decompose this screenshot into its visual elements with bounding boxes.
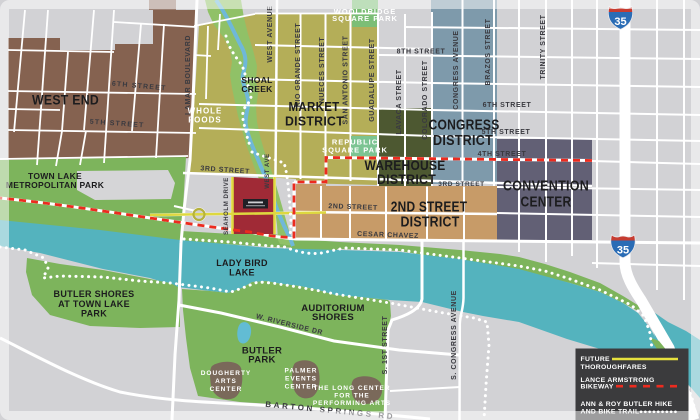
svg-text:SQUARE PARK: SQUARE PARK (332, 14, 398, 23)
svg-text:NUECES STREET: NUECES STREET (319, 37, 326, 104)
svg-text:AT TOWN LAKE: AT TOWN LAKE (58, 299, 130, 309)
svg-text:LADY BIRD: LADY BIRD (216, 258, 268, 268)
svg-text:S. 1ST STREET: S. 1ST STREET (382, 316, 389, 375)
svg-text:EVENTS: EVENTS (285, 376, 317, 383)
svg-text:THOROUGHFARES: THOROUGHFARES (581, 364, 647, 371)
svg-text:CONGRESS AVENUE: CONGRESS AVENUE (453, 30, 460, 109)
svg-text:4TH STREET: 4TH STREET (478, 151, 527, 158)
svg-text:SAN ANTONIO STREET: SAN ANTONIO STREET (343, 35, 350, 124)
svg-text:CREEK: CREEK (241, 84, 273, 94)
svg-text:DISTRICT: DISTRICT (377, 172, 436, 188)
svg-text:FUTURE: FUTURE (581, 356, 611, 363)
svg-text:BUTLER SHORES: BUTLER SHORES (54, 289, 135, 299)
svg-text:RIO GRANDE STREET: RIO GRANDE STREET (295, 23, 302, 108)
svg-text:SQUARE PARK: SQUARE PARK (322, 146, 388, 155)
svg-text:CONGRESS: CONGRESS (429, 116, 500, 133)
svg-text:FOODS: FOODS (188, 116, 221, 125)
svg-text:8TH STREET: 8TH STREET (397, 49, 446, 56)
svg-text:MARKET: MARKET (289, 100, 340, 114)
svg-text:WHOLE: WHOLE (188, 107, 223, 116)
svg-text:S. CONGRESS AVENUE: S. CONGRESS AVENUE (451, 290, 458, 380)
svg-text:SEAHOLM DRIVE: SEAHOLM DRIVE (224, 177, 230, 235)
svg-text:WEST AVENUE: WEST AVENUE (267, 5, 274, 62)
svg-text:METROPOLITAN PARK: METROPOLITAN PARK (6, 180, 105, 190)
svg-text:SHORES: SHORES (312, 312, 354, 323)
svg-text:ANN & ROY BUTLER HIKE: ANN & ROY BUTLER HIKE (581, 401, 673, 408)
svg-text:LAMAR BOULEVARD: LAMAR BOULEVARD (185, 35, 192, 115)
svg-text:DISTRICT: DISTRICT (433, 132, 493, 149)
svg-text:CENTER: CENTER (521, 195, 572, 211)
svg-text:WEST END: WEST END (32, 93, 99, 108)
svg-text:CONVENTION: CONVENTION (503, 179, 589, 195)
svg-text:WEST AVE: WEST AVE (265, 153, 271, 188)
svg-text:DISTRICT: DISTRICT (401, 213, 460, 230)
svg-text:PARK: PARK (81, 309, 107, 319)
svg-text:PERFORMING ARTS: PERFORMING ARTS (313, 400, 391, 407)
svg-text:ARTS: ARTS (215, 378, 237, 385)
svg-text:BRAZOS STREET: BRAZOS STREET (485, 18, 492, 85)
svg-text:LAVACA STREET: LAVACA STREET (396, 69, 403, 134)
svg-text:3RD STREET: 3RD STREET (438, 181, 484, 188)
svg-text:PARK: PARK (248, 355, 275, 366)
svg-text:TRINITY STREET: TRINITY STREET (540, 14, 547, 79)
svg-text:GUADALUPE STREET: GUADALUPE STREET (369, 38, 376, 122)
svg-text:BIKEWAY: BIKEWAY (581, 384, 614, 391)
svg-text:FOR THE: FOR THE (334, 393, 370, 400)
svg-text:THE LONG CENTER: THE LONG CENTER (313, 385, 390, 392)
svg-text:6TH STREET: 6TH STREET (483, 102, 532, 109)
svg-text:35: 35 (614, 16, 626, 28)
svg-text:DISTRICT: DISTRICT (285, 115, 344, 129)
svg-text:PALMER: PALMER (285, 368, 318, 375)
svg-text:CENTER: CENTER (210, 386, 243, 393)
svg-text:LAKE: LAKE (229, 268, 255, 278)
svg-text:DOUGHERTY: DOUGHERTY (201, 370, 252, 377)
